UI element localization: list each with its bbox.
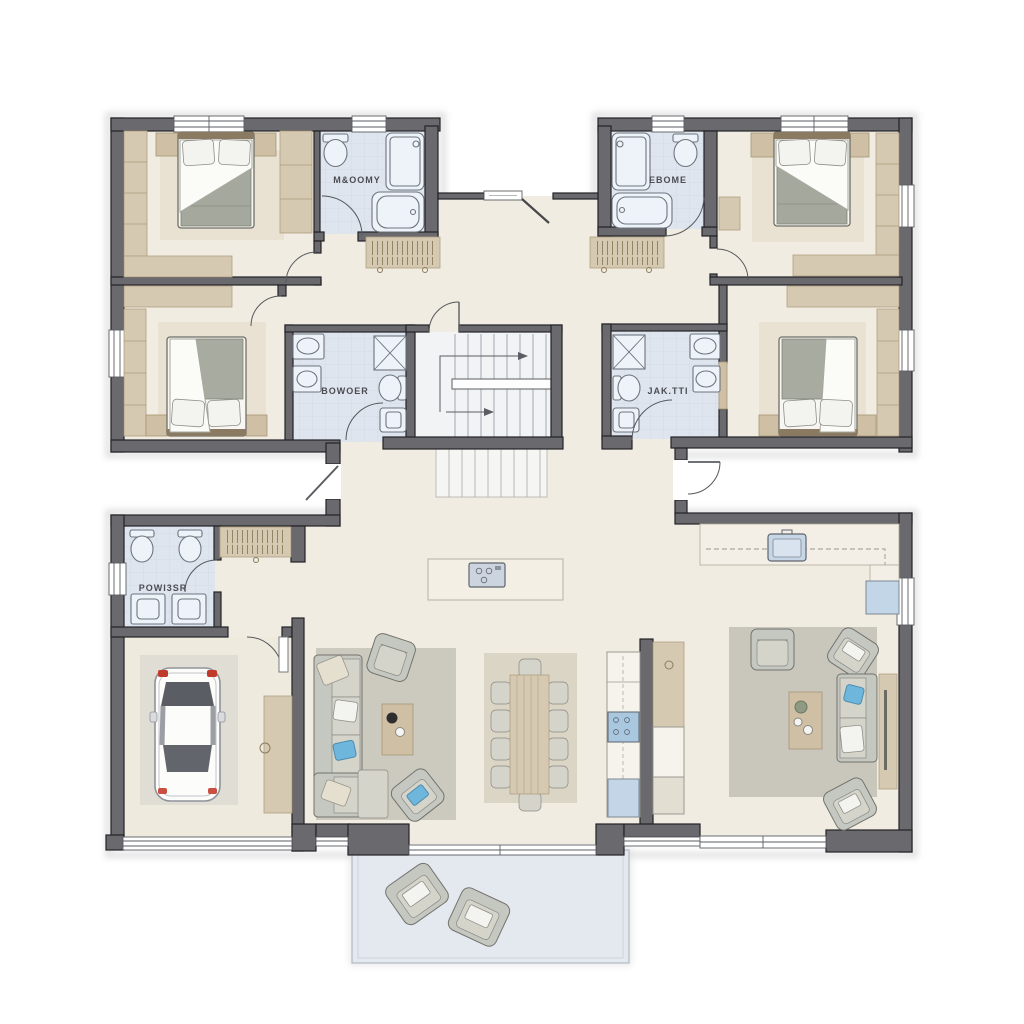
- svg-text:EBOME: EBOME: [649, 175, 687, 185]
- svg-text:POWI3SR: POWI3SR: [139, 583, 188, 593]
- svg-text:JAK.TTI: JAK.TTI: [647, 386, 688, 396]
- svg-text:M&OOMY: M&OOMY: [333, 175, 381, 185]
- svg-text:BOWOER: BOWOER: [321, 386, 369, 396]
